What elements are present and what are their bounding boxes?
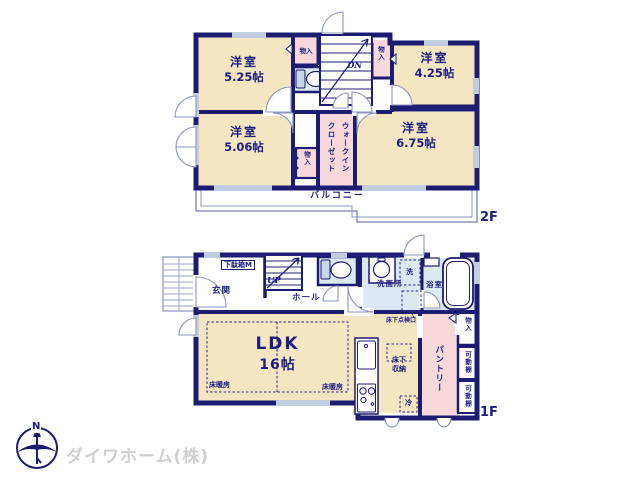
- room-425-size: 4.25帖: [392, 67, 477, 80]
- room-506-label: 洋室 5.06帖: [198, 126, 290, 154]
- stairs-down-label: DN: [347, 62, 362, 72]
- shoebox-label: 下駄箱M: [221, 260, 255, 270]
- balcony-label: バルコニー: [295, 191, 380, 201]
- toilet-1f-icon: [321, 260, 351, 279]
- room-425-name: 洋室: [392, 52, 477, 66]
- washroom-label: 洗面所: [377, 280, 403, 289]
- floorplan-graphics: [0, 0, 640, 480]
- underfloor-access-label: 床下点検口: [386, 318, 416, 325]
- room-525-label: 洋室 5.25帖: [198, 56, 290, 84]
- stairs-up-label: UP: [267, 277, 281, 287]
- storage-1f-label: 物入: [463, 317, 470, 343]
- ldk-size: 16帖: [230, 357, 325, 373]
- compass-icon: [16, 427, 58, 468]
- storage-c-label: 物入: [302, 151, 309, 179]
- floor2-label: 2F: [480, 211, 498, 226]
- floor1-label: 1F: [480, 406, 498, 421]
- entrance-label: 玄関: [212, 287, 231, 297]
- room-675-size: 6.75帖: [371, 137, 461, 150]
- storage-b-label: 物入: [376, 46, 383, 76]
- floor-heating-label-1: 床暖房: [209, 381, 230, 389]
- room-425-label: 洋室 4.25帖: [392, 52, 477, 80]
- room-675-name: 洋室: [371, 122, 461, 136]
- underfloor-storage-label: 床下収納: [391, 356, 407, 374]
- ldk-label: LDK 16帖: [230, 335, 325, 373]
- washer-label: 洗: [406, 268, 413, 276]
- stairwell-door-arc: [322, 12, 343, 33]
- floorplan-canvas: 洋室 5.25帖 洋室 4.25帖 洋室 5.06帖 洋室 6.75帖 物入 物…: [0, 0, 640, 480]
- wic-label: ウォークインクローゼット: [324, 122, 352, 175]
- floor-heating-label-2: 床暖房: [322, 383, 343, 391]
- room-675-label: 洋室 6.75帖: [371, 122, 461, 150]
- hall-label: ホール: [292, 294, 321, 304]
- room-525-size: 5.25帖: [198, 71, 290, 84]
- kitchen-icon: [355, 338, 378, 414]
- porch-steps: [163, 257, 196, 311]
- storage-a-label: 物入: [294, 48, 318, 55]
- ldk-name: LDK: [230, 335, 325, 355]
- pantry-label: パントリー: [433, 345, 443, 409]
- bathroom-label: 浴室: [426, 281, 443, 290]
- fridge-label: 冷: [405, 399, 412, 407]
- room-506-size: 5.06帖: [198, 141, 290, 154]
- compass-north-label: N: [31, 421, 41, 433]
- room-525-name: 洋室: [198, 56, 290, 70]
- room-506-name: 洋室: [198, 126, 290, 140]
- company-name: ダイワホーム(株): [66, 448, 209, 468]
- shelf-label-1: 可動棚: [463, 351, 470, 379]
- shelf-label-2: 可動棚: [463, 385, 470, 413]
